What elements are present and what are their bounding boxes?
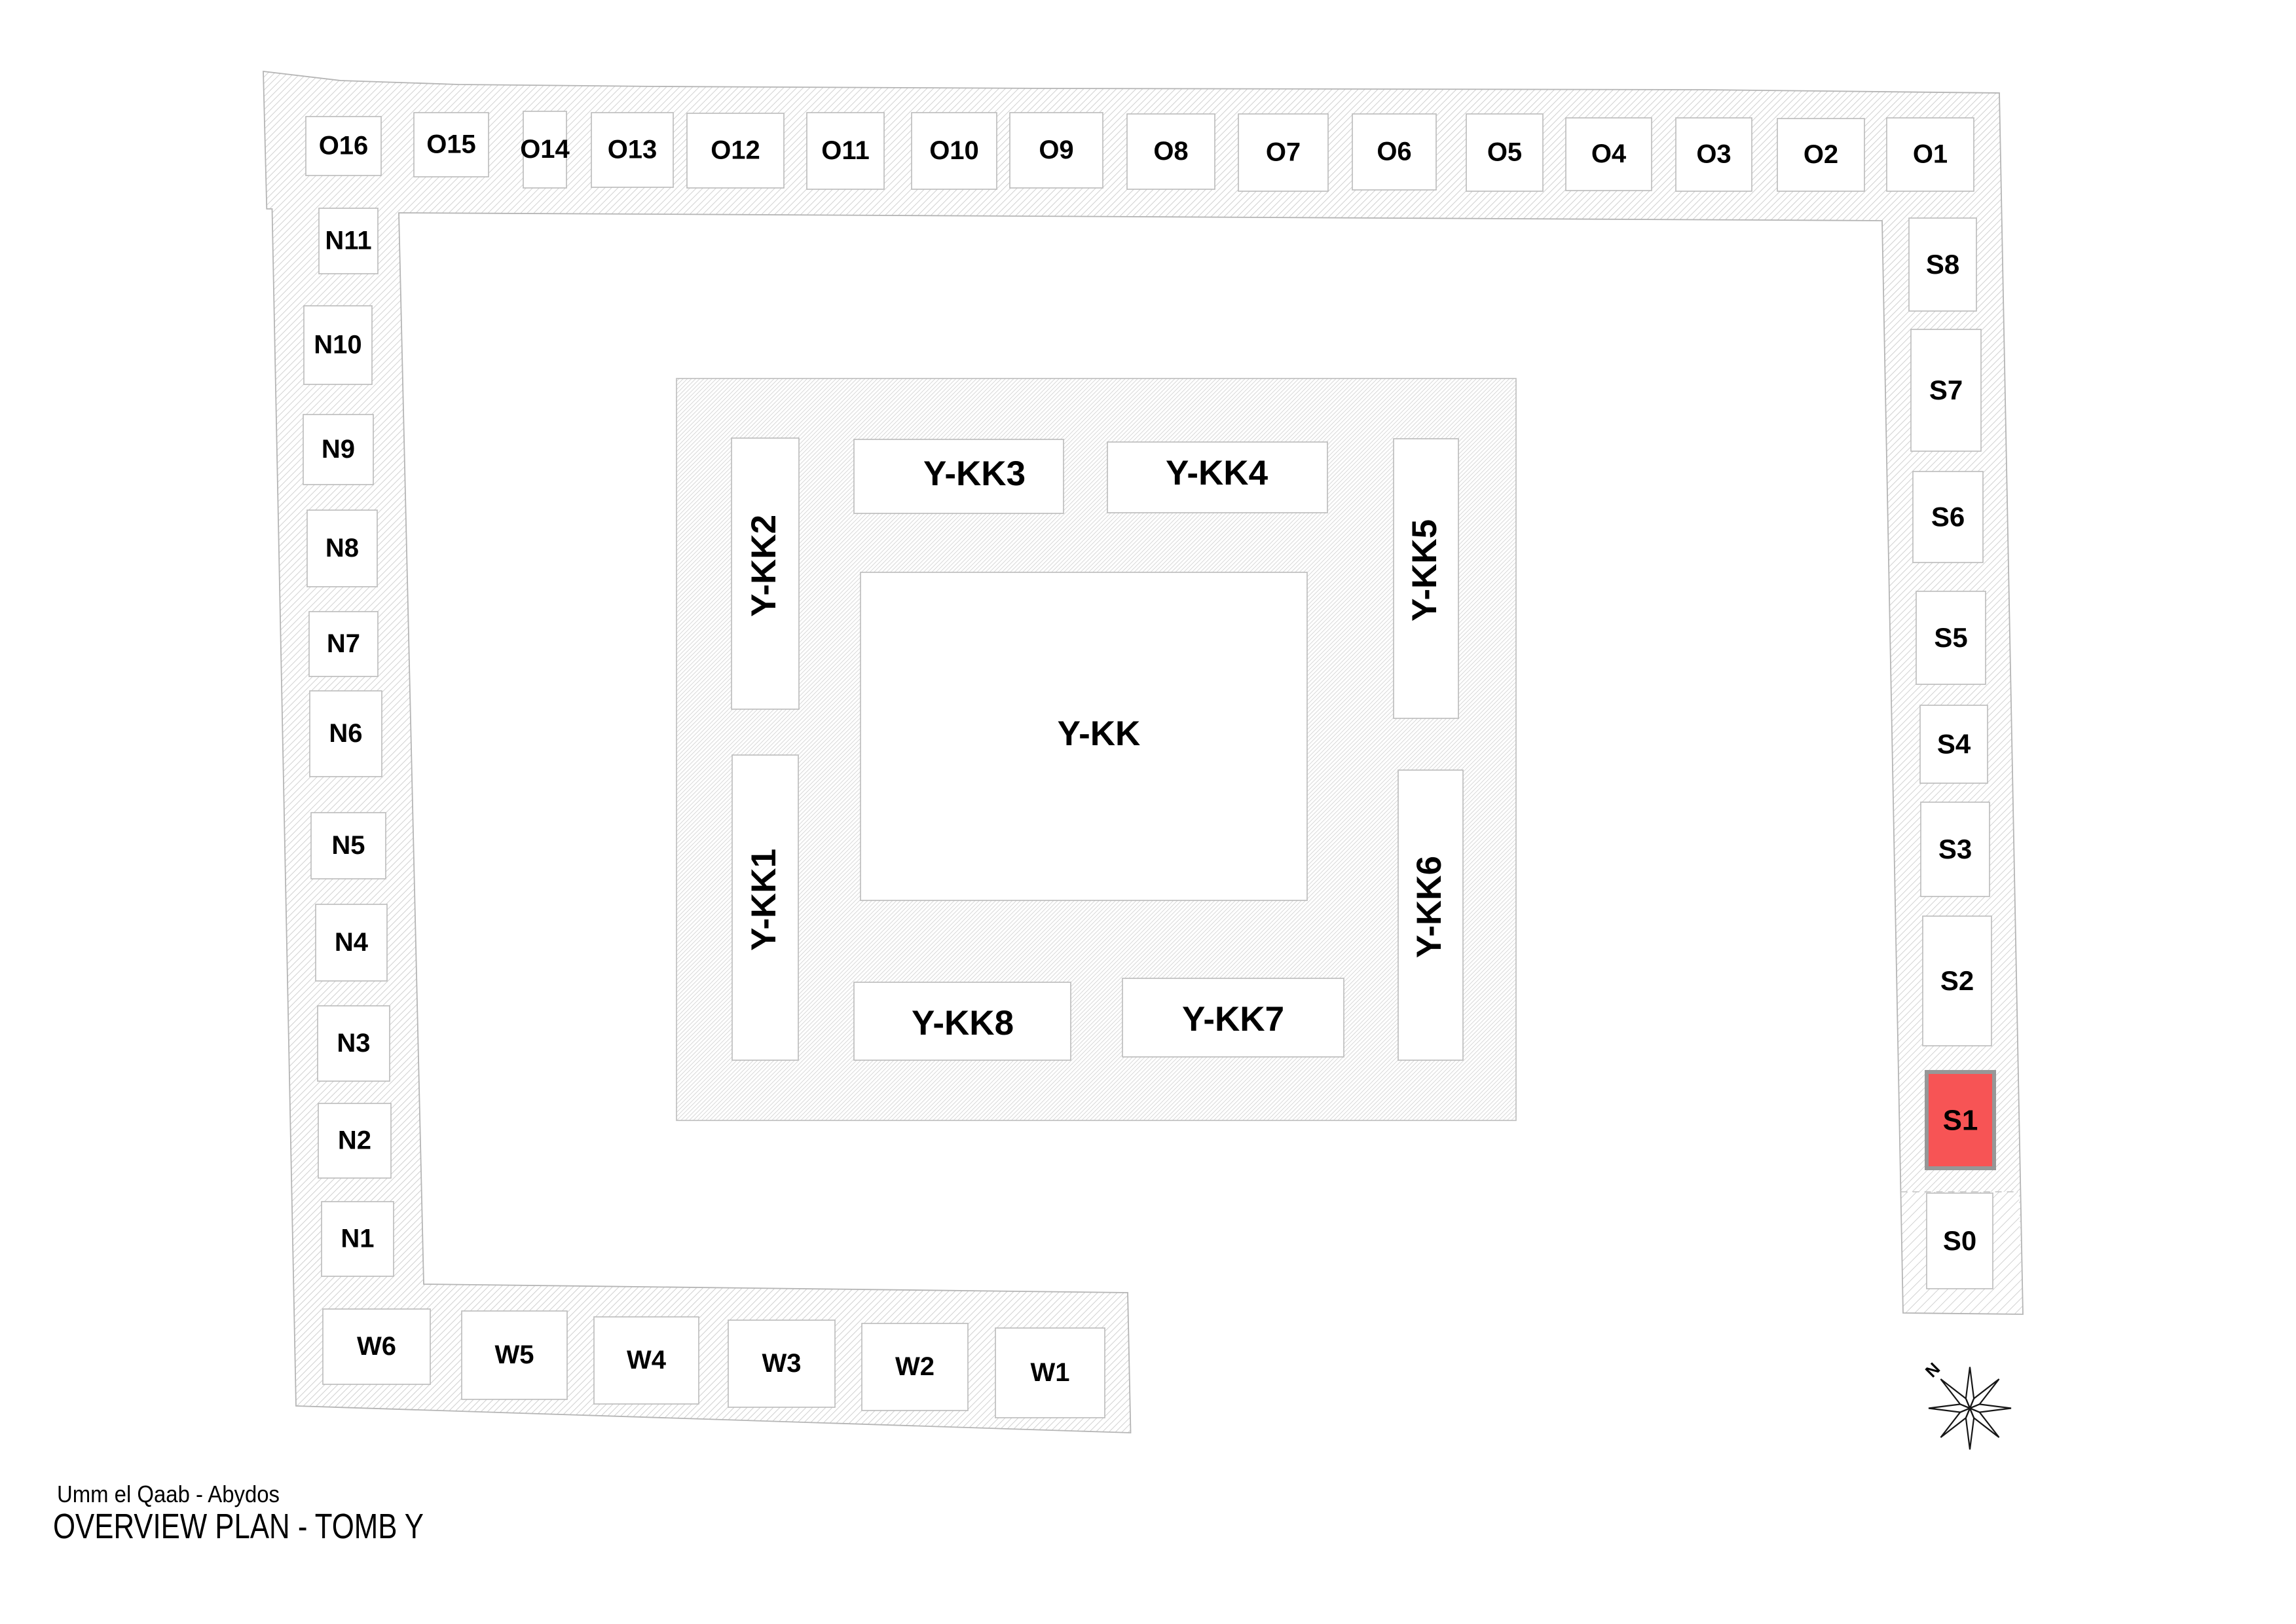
svg-text:O7: O7 [1266,138,1301,167]
svg-text:S3: S3 [1938,834,1972,864]
svg-text:W5: W5 [495,1340,534,1369]
svg-text:W4: W4 [627,1346,667,1375]
svg-text:N11: N11 [325,227,371,255]
svg-text:S0: S0 [1943,1225,1976,1256]
svg-text:W1: W1 [1031,1358,1070,1387]
svg-text:S7: S7 [1929,375,1963,405]
svg-text:N7: N7 [327,629,360,658]
svg-text:Y-KK3: Y-KK3 [923,454,1026,493]
svg-text:O8: O8 [1153,137,1188,166]
svg-text:Y-KK1: Y-KK1 [745,849,783,951]
svg-text:O15: O15 [426,130,476,159]
svg-text:Y-KK8: Y-KK8 [912,1004,1014,1043]
svg-text:O9: O9 [1039,136,1073,164]
svg-text:O12: O12 [711,136,760,165]
svg-text:N1: N1 [341,1225,374,1253]
svg-text:O14: O14 [520,135,570,164]
svg-text:Umm el Qaab - Abydos: Umm el Qaab - Abydos [57,1481,280,1507]
svg-text:S4: S4 [1937,729,1971,760]
svg-text:Y-KK7: Y-KK7 [1182,1000,1284,1039]
svg-text:N9: N9 [322,435,355,464]
svg-text:Y-KK5: Y-KK5 [1405,519,1444,621]
svg-text:O13: O13 [608,136,657,164]
svg-text:N2: N2 [338,1126,371,1155]
svg-text:Y-KK: Y-KK [1058,714,1141,753]
svg-text:N8: N8 [325,534,359,563]
svg-text:Y-KK6: Y-KK6 [1410,856,1449,958]
svg-text:W6: W6 [357,1332,396,1361]
svg-text:N10: N10 [314,331,361,360]
svg-text:W3: W3 [762,1349,802,1378]
svg-text:O1: O1 [1913,140,1948,169]
svg-text:S6: S6 [1931,502,1965,532]
svg-text:O16: O16 [319,132,369,160]
svg-text:O3: O3 [1696,140,1731,169]
svg-text:O6: O6 [1377,138,1411,166]
svg-text:O2: O2 [1804,140,1838,169]
svg-text:OVERVIEW PLAN - TOMB Y: OVERVIEW PLAN - TOMB Y [53,1507,424,1546]
svg-text:N5: N5 [331,831,365,860]
svg-text:S8: S8 [1926,249,1959,280]
svg-text:O10: O10 [929,136,979,165]
svg-text:Y-KK2: Y-KK2 [745,515,783,617]
svg-text:Y-KK4: Y-KK4 [1166,454,1268,492]
svg-text:N6: N6 [329,719,362,748]
svg-text:O11: O11 [821,136,869,165]
svg-text:W2: W2 [895,1352,935,1381]
svg-text:N3: N3 [337,1029,370,1058]
svg-text:S2: S2 [1940,965,1974,996]
svg-text:O4: O4 [1591,139,1627,168]
svg-text:N4: N4 [335,928,369,957]
svg-text:S1: S1 [1943,1105,1978,1137]
svg-text:S5: S5 [1934,622,1967,653]
svg-text:O5: O5 [1487,138,1522,167]
